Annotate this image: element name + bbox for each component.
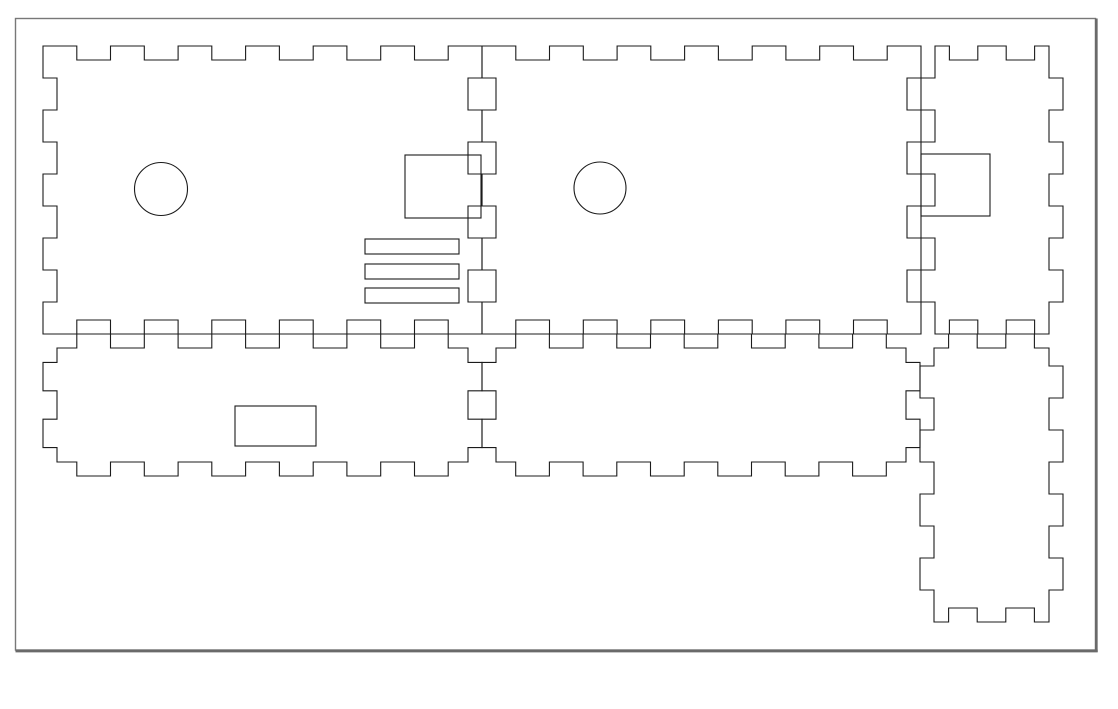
circle-hole-middle-panel xyxy=(574,162,626,214)
laser-cut-sheet-drawing xyxy=(0,0,1118,709)
circle-hole-left-panel xyxy=(135,163,188,216)
panel-bottom-middle-rail xyxy=(482,334,920,476)
panel-bottom-right-end xyxy=(920,334,1063,622)
panel-top-left-side xyxy=(43,46,482,334)
rect-hole-bottom-left-rail xyxy=(235,406,316,446)
vent-slot-2 xyxy=(365,264,459,279)
page xyxy=(0,0,1118,709)
square-hole-left-panel xyxy=(405,155,481,218)
vent-slot-3 xyxy=(365,288,459,303)
vent-slot-1 xyxy=(365,239,459,254)
panel-bottom-left-rail xyxy=(43,334,482,476)
panel-top-middle-side xyxy=(482,46,921,334)
square-hole-right-panel xyxy=(921,154,990,216)
panel-top-right-end xyxy=(921,46,1063,334)
